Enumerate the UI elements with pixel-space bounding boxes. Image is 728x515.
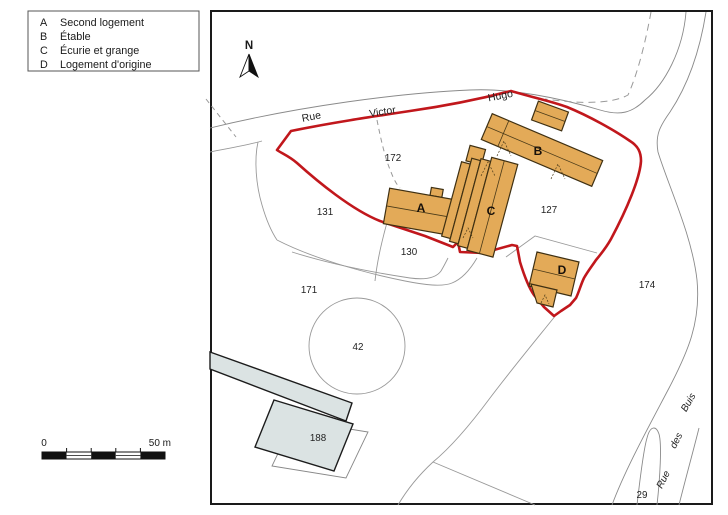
parcel-label-171: 171: [301, 285, 317, 296]
scale-label-start: 0: [41, 438, 47, 449]
scale-segment: [42, 452, 67, 459]
legend-key-a: A: [40, 17, 48, 29]
legend-label-b: Étable: [60, 30, 91, 43]
legend-key-c: C: [40, 45, 48, 57]
parcel-label-29: 29: [637, 490, 648, 501]
parcel-label-172: 172: [385, 153, 401, 164]
scale-label-end: 50 m: [149, 438, 171, 449]
map-canvas: 172 131 130 171 127 42 174 188 29 A B C …: [0, 0, 728, 515]
legend-key-d: D: [40, 59, 48, 71]
north-label: N: [245, 40, 253, 52]
building-label-d: D: [558, 263, 567, 277]
building-label-c: C: [487, 204, 496, 218]
parcel-label-127: 127: [541, 205, 557, 216]
parcel-label-42: 42: [353, 342, 364, 353]
legend-key-b: B: [40, 31, 47, 43]
cadastral-map-page: 172 131 130 171 127 42 174 188 29 A B C …: [0, 0, 728, 515]
legend-label-d: Logement d'origine: [60, 59, 152, 71]
building-label-a: A: [417, 201, 426, 215]
parcel-label-174: 174: [639, 280, 656, 291]
scale-bar: 0 50 m: [41, 438, 171, 459]
legend: A Second logement B Étable C Écurie et g…: [28, 11, 199, 71]
parcel-label-131: 131: [317, 207, 333, 218]
scale-segment: [91, 452, 116, 459]
legend-label-c: Écurie et grange: [60, 44, 139, 57]
parcel-label-130: 130: [401, 247, 418, 258]
legend-label-a: Second logement: [60, 17, 144, 29]
building-label-b: B: [534, 144, 543, 158]
scale-segment: [140, 452, 165, 459]
parcel-label-188: 188: [310, 433, 327, 444]
